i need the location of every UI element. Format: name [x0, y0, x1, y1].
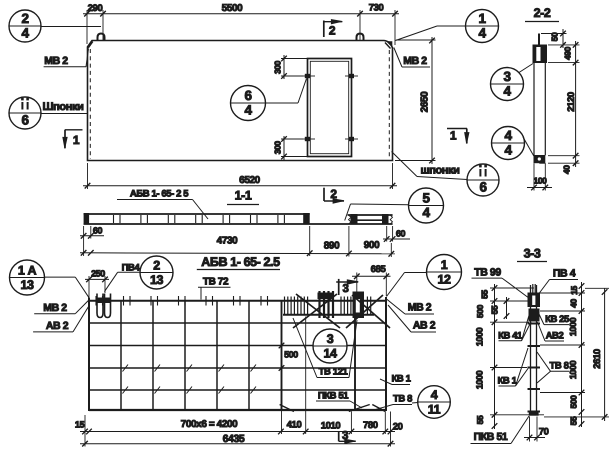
- svg-text:ТВ 121: ТВ 121: [319, 367, 349, 378]
- svg-text:1000: 1000: [568, 360, 578, 379]
- svg-text:5: 5: [422, 190, 430, 205]
- svg-text:290: 290: [88, 3, 103, 14]
- svg-text:500: 500: [569, 395, 579, 409]
- svg-text:60: 60: [93, 226, 103, 236]
- svg-text:6435: 6435: [223, 433, 245, 445]
- svg-text:2120: 2120: [566, 92, 577, 112]
- svg-text:1000: 1000: [568, 317, 578, 336]
- svg-text:15: 15: [75, 420, 85, 430]
- svg-text:шпонки: шпонки: [420, 165, 459, 177]
- svg-text:5500: 5500: [222, 3, 243, 14]
- svg-text:КВ 1: КВ 1: [392, 374, 412, 385]
- svg-text:2: 2: [21, 11, 28, 26]
- svg-text:1000: 1000: [475, 370, 485, 389]
- svg-text:2: 2: [330, 187, 337, 201]
- svg-text:Шпонки: Шпонки: [43, 101, 84, 113]
- svg-text:4: 4: [504, 143, 512, 158]
- svg-text:780: 780: [363, 420, 378, 431]
- svg-text:2-2: 2-2: [534, 6, 551, 20]
- svg-text:МВ 2: МВ 2: [408, 302, 432, 314]
- svg-text:250: 250: [91, 269, 105, 279]
- svg-text:490: 490: [563, 46, 573, 60]
- svg-text:1: 1: [441, 258, 448, 272]
- svg-text:4: 4: [431, 388, 438, 402]
- svg-text:300: 300: [273, 141, 283, 155]
- svg-text:100: 100: [534, 176, 548, 186]
- svg-text:АВ 2: АВ 2: [46, 320, 69, 332]
- svg-text:900: 900: [364, 240, 380, 251]
- svg-text:АБВ 1- 65- 2.5: АБВ 1- 65- 2.5: [201, 255, 280, 269]
- svg-text:4730: 4730: [217, 236, 238, 247]
- svg-text:500: 500: [284, 350, 298, 360]
- svg-text:12: 12: [437, 273, 451, 287]
- svg-text:КВ 25: КВ 25: [545, 314, 570, 325]
- svg-text:1: 1: [450, 129, 457, 143]
- svg-text:500: 500: [475, 304, 485, 318]
- svg-text:ПВ 4: ПВ 4: [553, 268, 576, 280]
- svg-text:3: 3: [343, 283, 349, 295]
- svg-text:6: 6: [21, 113, 29, 128]
- svg-text:2: 2: [153, 258, 160, 272]
- svg-text:700x6 = 4200: 700x6 = 4200: [181, 419, 238, 430]
- svg-text:1: 1: [73, 133, 80, 147]
- svg-text:15: 15: [569, 286, 579, 295]
- svg-text:300: 300: [273, 60, 283, 74]
- svg-text:3: 3: [503, 69, 511, 84]
- svg-text:2: 2: [329, 24, 336, 38]
- svg-text:3-3: 3-3: [524, 247, 541, 261]
- svg-text:ТВ 72: ТВ 72: [203, 277, 229, 288]
- svg-text:410: 410: [287, 419, 302, 430]
- svg-text:55: 55: [480, 290, 490, 299]
- svg-text:МВ 2: МВ 2: [44, 55, 68, 67]
- svg-text:20: 20: [393, 422, 403, 433]
- svg-text:МВ 2: МВ 2: [403, 55, 427, 67]
- svg-text:55: 55: [490, 305, 500, 314]
- svg-text:55: 55: [475, 415, 485, 424]
- svg-text:ТВ 99: ТВ 99: [474, 267, 501, 279]
- svg-text:6520: 6520: [239, 175, 260, 186]
- svg-text:40: 40: [569, 299, 579, 308]
- svg-text:3: 3: [327, 332, 334, 346]
- svg-text:40: 40: [562, 165, 572, 174]
- svg-text:1 А: 1 А: [18, 263, 37, 277]
- svg-text:6: 6: [244, 88, 252, 103]
- svg-text:2650: 2650: [420, 91, 431, 112]
- svg-text:ТВ 8: ТВ 8: [393, 394, 412, 405]
- svg-text:4: 4: [244, 103, 252, 118]
- svg-text:4: 4: [21, 26, 29, 41]
- svg-text:14: 14: [323, 347, 337, 361]
- svg-text:685: 685: [371, 264, 387, 275]
- svg-text:АВ 2: АВ 2: [413, 320, 436, 332]
- svg-text:11: 11: [428, 403, 441, 417]
- svg-text:6: 6: [479, 180, 487, 195]
- svg-text:МВ 2: МВ 2: [43, 302, 67, 314]
- svg-text:50: 50: [550, 32, 560, 41]
- svg-text:4: 4: [422, 205, 430, 220]
- svg-text:КВ 41: КВ 41: [498, 331, 523, 342]
- svg-text:13: 13: [20, 278, 34, 292]
- svg-text:1-1: 1-1: [235, 189, 252, 203]
- svg-text:4: 4: [503, 84, 511, 99]
- svg-text:13: 13: [150, 273, 164, 287]
- svg-text:АБВ 1- 65- 2 5: АБВ 1- 65- 2 5: [130, 189, 189, 200]
- svg-text:ПКВ 51: ПКВ 51: [318, 391, 349, 402]
- svg-text:4: 4: [504, 128, 512, 143]
- svg-text:55: 55: [569, 416, 579, 425]
- svg-text:70: 70: [539, 427, 549, 438]
- svg-text:2610: 2610: [592, 349, 603, 369]
- svg-text:ТВ 8: ТВ 8: [550, 361, 569, 372]
- svg-text:730: 730: [369, 3, 384, 14]
- svg-text:КВ 1: КВ 1: [498, 376, 518, 387]
- svg-text:ПКВ 51: ПКВ 51: [474, 431, 508, 443]
- svg-text:60: 60: [396, 229, 406, 239]
- svg-text:1: 1: [478, 11, 486, 26]
- svg-text:890: 890: [324, 241, 340, 252]
- svg-text:4: 4: [478, 26, 486, 41]
- svg-text:1000: 1000: [475, 327, 485, 346]
- svg-text:АВ2: АВ2: [546, 331, 564, 342]
- svg-text:1010: 1010: [321, 420, 341, 431]
